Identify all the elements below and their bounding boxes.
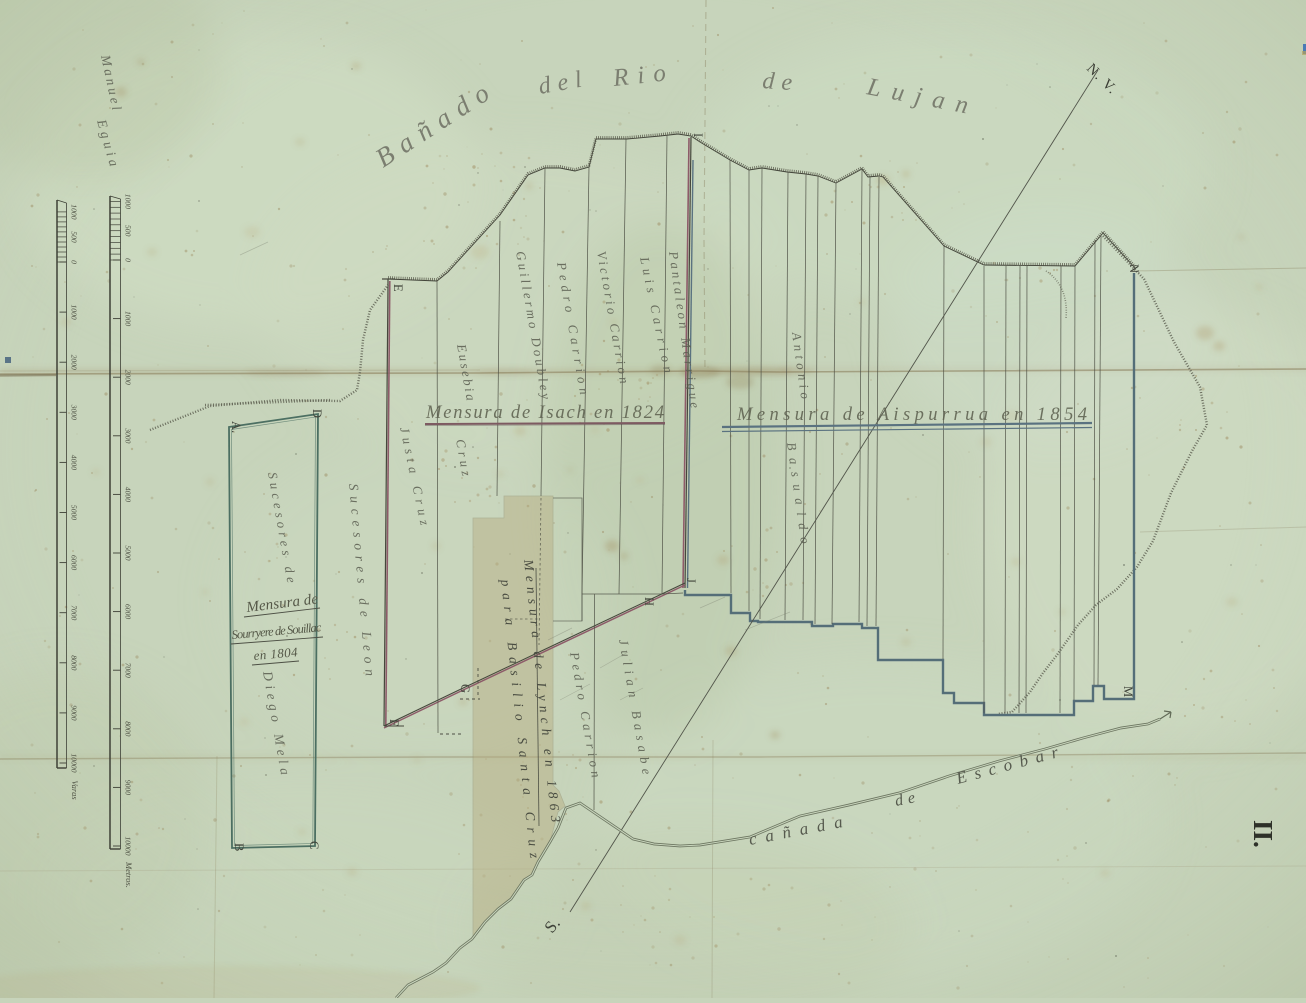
svg-text:6000: 6000 xyxy=(70,555,79,570)
svg-text:9000: 9000 xyxy=(70,705,79,720)
svg-text:4000: 4000 xyxy=(70,455,79,470)
svg-text:J: J xyxy=(684,578,698,583)
svg-text:8000: 8000 xyxy=(124,721,133,736)
svg-text:A.: A. xyxy=(229,421,243,433)
svg-text:500: 500 xyxy=(124,225,133,237)
svg-text:D: D xyxy=(310,409,324,418)
svg-text:B: B xyxy=(232,843,246,851)
svg-text:Metros.: Metros. xyxy=(124,861,134,888)
svg-text:7000: 7000 xyxy=(124,663,133,678)
svg-text:7000: 7000 xyxy=(70,605,79,620)
svg-text:1000: 1000 xyxy=(70,305,79,320)
svg-text:10000: 10000 xyxy=(124,837,133,856)
svg-text:9000: 9000 xyxy=(124,780,133,795)
svg-text:10000: 10000 xyxy=(70,754,79,773)
svg-text:2000: 2000 xyxy=(70,355,79,370)
svg-text:II.: II. xyxy=(1248,820,1278,848)
svg-text:C: C xyxy=(307,841,321,849)
svg-text:H: H xyxy=(642,597,656,606)
svg-text:2000: 2000 xyxy=(124,370,133,385)
svg-text:N: N xyxy=(1127,264,1141,273)
svg-text:G: G xyxy=(458,684,472,693)
svg-text:6000: 6000 xyxy=(124,604,133,619)
svg-text:de: de xyxy=(762,68,800,96)
svg-text:500: 500 xyxy=(70,231,79,243)
svg-text:M: M xyxy=(1121,686,1135,697)
svg-text:F: F xyxy=(387,719,401,726)
svg-text:8000: 8000 xyxy=(70,655,79,670)
svg-text:5000: 5000 xyxy=(124,545,133,560)
svg-text:3000: 3000 xyxy=(124,427,133,443)
svg-text:1000: 1000 xyxy=(124,311,133,326)
svg-text:Varas: Varas xyxy=(70,780,80,800)
svg-text:4000: 4000 xyxy=(124,487,133,502)
svg-text:0: 0 xyxy=(124,258,133,262)
svg-text:1000: 1000 xyxy=(70,204,79,219)
svg-text:0: 0 xyxy=(70,260,79,264)
svg-text:Mensura de Isach en 1824: Mensura de Isach en 1824 xyxy=(425,403,664,423)
svg-text:3000: 3000 xyxy=(70,404,79,420)
svg-text:E: E xyxy=(391,284,405,292)
svg-text:I: I xyxy=(691,133,705,137)
svg-text:5000: 5000 xyxy=(70,505,79,520)
svg-text:1000: 1000 xyxy=(124,194,133,209)
